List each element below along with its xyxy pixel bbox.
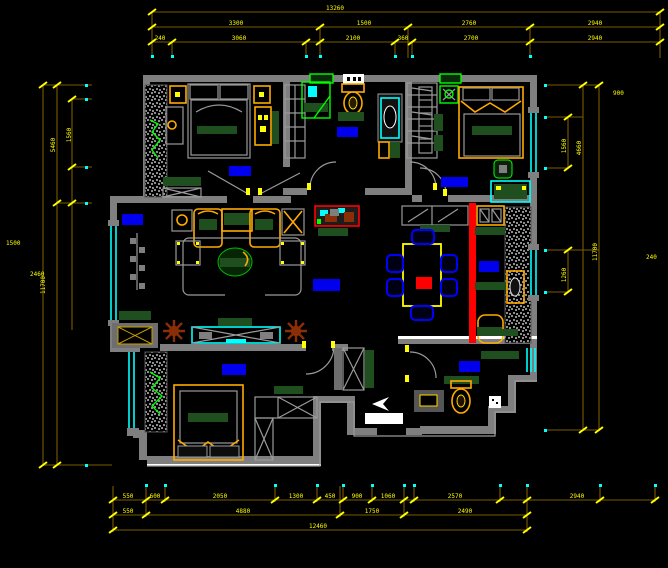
bed-double[interactable] xyxy=(459,87,523,158)
dim-text: 550 xyxy=(123,493,134,500)
dim-text: 1300 xyxy=(289,493,304,500)
window-living-left xyxy=(108,220,119,326)
washstand[interactable] xyxy=(414,390,444,412)
counter xyxy=(481,351,519,359)
corner-wardrobe[interactable] xyxy=(255,397,317,460)
dimension-lines-left[interactable]: 11700 5460 1560 1500 2460 xyxy=(6,82,112,468)
shelf xyxy=(274,386,303,394)
shower-head xyxy=(308,86,317,97)
plant-stand[interactable] xyxy=(130,233,145,290)
dimension-lines-right[interactable]: 4660 11700 1560 1260 240 900 xyxy=(544,82,657,433)
table-decor xyxy=(177,215,187,225)
dim-text: 2490 xyxy=(458,508,473,515)
bedroom3-furniture[interactable] xyxy=(174,364,317,460)
dining-table[interactable] xyxy=(403,244,441,306)
toilet[interactable] xyxy=(451,381,471,413)
washbasin-unit[interactable] xyxy=(378,94,402,158)
plant-box[interactable] xyxy=(440,86,458,103)
dining-furniture[interactable] xyxy=(387,206,468,320)
door-bath xyxy=(307,162,336,190)
door-closet xyxy=(410,162,437,190)
dim-text: 3300 xyxy=(229,20,244,27)
potted-plant[interactable] xyxy=(285,320,307,342)
counter xyxy=(488,329,518,336)
vent-top xyxy=(343,74,364,84)
dim-text: 1500 xyxy=(357,20,372,27)
shelf xyxy=(318,228,348,236)
dim-text: 2100 xyxy=(346,35,361,42)
cabinet-strip xyxy=(434,135,443,151)
entry-label-block xyxy=(365,413,403,424)
dim-text: 11700 xyxy=(40,276,47,294)
room-label-block xyxy=(313,279,340,291)
dim-dots-left xyxy=(85,84,88,467)
dresser[interactable] xyxy=(255,107,271,145)
dim-text: 2760 xyxy=(462,20,477,27)
dim-text: 4880 xyxy=(236,508,251,515)
dim-text: 13260 xyxy=(326,5,344,12)
cabinet-strip xyxy=(272,111,279,144)
cad-canvas: 13260 3300 1500 2760 2940 240 3060 2100 … xyxy=(0,0,668,568)
dim-text: 12460 xyxy=(309,523,327,530)
room-label-block xyxy=(229,166,251,176)
entry-cabinet[interactable] xyxy=(334,348,374,390)
room-label-block xyxy=(337,127,358,137)
bath-cabinet xyxy=(338,112,364,121)
vanity-stool xyxy=(168,121,176,129)
toilet[interactable] xyxy=(342,84,364,114)
window-bedroom2-right xyxy=(528,107,539,178)
cabinet-strip xyxy=(434,114,443,131)
shoe-bench[interactable] xyxy=(402,206,468,232)
living-room-furniture[interactable] xyxy=(112,209,307,348)
floor-drain xyxy=(489,396,501,408)
dim-text: 2940 xyxy=(588,20,603,27)
dim-text: 600 xyxy=(150,493,161,500)
counter xyxy=(475,282,507,290)
hallway-furniture[interactable] xyxy=(313,206,403,424)
side-table[interactable] xyxy=(172,210,192,231)
window-dining-right xyxy=(528,244,539,301)
dim-text: 2940 xyxy=(588,35,603,42)
window-balcony-left xyxy=(129,352,134,428)
corner-table[interactable] xyxy=(176,241,200,265)
counter xyxy=(475,227,505,235)
dim-dots-bottom xyxy=(145,484,657,487)
dim-text: 1560 xyxy=(66,127,73,142)
knob xyxy=(175,92,180,97)
dim-text: 900 xyxy=(613,90,624,97)
room-label-block xyxy=(222,364,246,375)
counter xyxy=(444,376,479,384)
dim-text: 3060 xyxy=(232,35,247,42)
room-label-block xyxy=(459,361,480,372)
shower[interactable] xyxy=(302,82,330,118)
dim-text: 1060 xyxy=(381,493,396,500)
dim-dots-right xyxy=(544,84,547,432)
bed-double[interactable] xyxy=(188,84,250,158)
dimension-lines-bottom[interactable]: 550 600 2050 1300 450 900 1060 2570 2940… xyxy=(109,484,659,533)
console-cabinet[interactable] xyxy=(315,206,359,226)
dim-text: 900 xyxy=(352,493,363,500)
balcony-bench[interactable] xyxy=(119,311,151,320)
dim-text: 2940 xyxy=(570,493,585,500)
knob xyxy=(259,92,264,97)
potted-plant[interactable] xyxy=(163,320,185,342)
dim-text: 550 xyxy=(123,508,134,515)
dim-text: 11700 xyxy=(592,243,599,261)
floor-plan-drawing: 13260 3300 1500 2760 2940 240 3060 2100 … xyxy=(0,0,668,568)
desk-and-chair[interactable] xyxy=(491,160,530,202)
dim-dots-top xyxy=(151,55,532,58)
dim-text: 2050 xyxy=(213,493,228,500)
side-table[interactable] xyxy=(282,209,304,235)
bed-runner xyxy=(197,126,237,134)
bed-double[interactable] xyxy=(174,385,243,460)
bathroom-top-furniture[interactable] xyxy=(302,82,437,158)
washing-machine[interactable] xyxy=(112,323,158,348)
dimension-lines-top[interactable]: 13260 3300 1500 2760 2940 240 3060 2100 … xyxy=(148,5,664,58)
tv-cabinet[interactable] xyxy=(192,318,280,343)
dim-text: 1750 xyxy=(365,508,380,515)
dim-text: 1560 xyxy=(561,138,568,153)
dim-text: 1260 xyxy=(561,267,568,282)
window-bedroom2-top xyxy=(440,74,461,83)
room-label-block xyxy=(122,214,143,225)
dim-text: 360 xyxy=(398,35,409,42)
dim-text: 4660 xyxy=(576,140,583,155)
coffee-table-plant[interactable] xyxy=(218,248,252,276)
dim-text: 2460 xyxy=(30,271,45,278)
room-label-block xyxy=(479,261,499,272)
dim-text: 5460 xyxy=(50,137,57,152)
dim-text: 240 xyxy=(646,254,657,261)
door-bedroom3 xyxy=(302,341,335,374)
sofa[interactable] xyxy=(222,209,252,231)
dim-text: 450 xyxy=(325,493,336,500)
gas-stove[interactable] xyxy=(477,206,504,225)
entry-arrow-icon xyxy=(372,397,389,411)
bench[interactable] xyxy=(163,177,201,197)
dim-text: 240 xyxy=(155,35,166,42)
rug-gap xyxy=(225,290,265,298)
room-label-block xyxy=(441,177,468,187)
dim-text: 2570 xyxy=(448,493,463,500)
dim-text: 2700 xyxy=(464,35,479,42)
door-entry-bath xyxy=(405,345,436,382)
kitchen-red-partition[interactable] xyxy=(469,203,476,343)
armchair[interactable] xyxy=(250,209,280,247)
dim-text: 1500 xyxy=(6,240,21,247)
